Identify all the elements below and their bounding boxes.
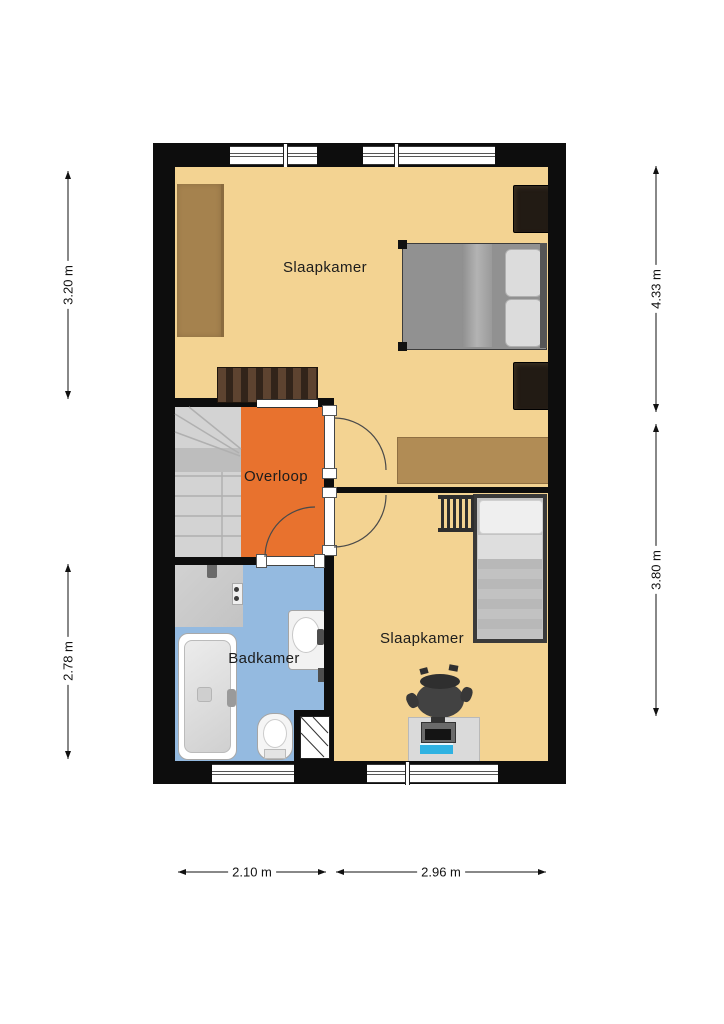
monitor-screen [425, 729, 451, 740]
dresser [217, 367, 318, 403]
toilet-seat [263, 719, 287, 748]
window [230, 146, 317, 165]
window [363, 146, 495, 165]
window [212, 764, 294, 783]
toilet-base [264, 749, 286, 759]
desk-wood [397, 437, 550, 484]
door-bedroom-2 [324, 490, 335, 549]
single-bed-pillow [479, 500, 543, 534]
door-jamb [322, 487, 337, 498]
door-bedroom-1 [324, 413, 335, 472]
bathtub-faucet [227, 689, 236, 707]
shower-knob [234, 587, 239, 592]
room-label-bathroom: Badkamer [199, 650, 329, 667]
wall-top [153, 143, 566, 167]
floor-plan-page: Slaapkamer Overloop Badkamer Slaapkamer … [0, 0, 724, 1024]
washbasin-faucet [317, 629, 324, 645]
door-jamb [314, 554, 325, 568]
wall-right [548, 143, 566, 784]
washbasin-bowl [292, 617, 320, 653]
office-chair-back [420, 674, 460, 689]
shower-knob [234, 596, 239, 601]
single-bed-duvet [478, 559, 542, 638]
bed-post [398, 342, 407, 351]
wall-bedroom-divider [334, 487, 548, 493]
dimension-left-top: 3.20 m [60, 261, 77, 309]
single-bed-sheet [478, 535, 542, 559]
door-bathroom [262, 556, 319, 566]
window [367, 764, 498, 783]
bathtub-drain [197, 687, 212, 702]
window-mullion [394, 144, 399, 167]
nightstand [513, 362, 550, 410]
door-jamb [256, 554, 267, 568]
double-bed-duvet [462, 244, 492, 347]
dimension-bottom-right: 2.96 m [417, 864, 465, 881]
nightstand [513, 185, 550, 233]
room-label-bedroom-2: Slaapkamer [352, 630, 492, 647]
dimension-right-top: 4.33 m [648, 265, 665, 313]
door-jamb [322, 405, 337, 416]
keyboard [420, 743, 453, 754]
duct-shaft [300, 716, 330, 759]
interior-glass-panel [257, 399, 318, 408]
bed-post [398, 240, 407, 249]
bunk-ladder [438, 495, 474, 532]
bed-headboard [540, 243, 547, 348]
wall-left [153, 143, 175, 784]
room-label-landing: Overloop [216, 468, 336, 485]
wardrobe [177, 184, 224, 337]
pillow [505, 249, 542, 297]
pillow [505, 299, 542, 347]
window-mullion [283, 144, 288, 167]
room-label-bedroom-1: Slaapkamer [250, 259, 400, 276]
dimension-bottom-left: 2.10 m [228, 864, 276, 881]
dimension-left-bottom: 2.78 m [60, 637, 77, 685]
dimension-right-bottom: 3.80 m [648, 546, 665, 594]
window-mullion [405, 762, 410, 785]
office-chair-detail [449, 664, 459, 671]
